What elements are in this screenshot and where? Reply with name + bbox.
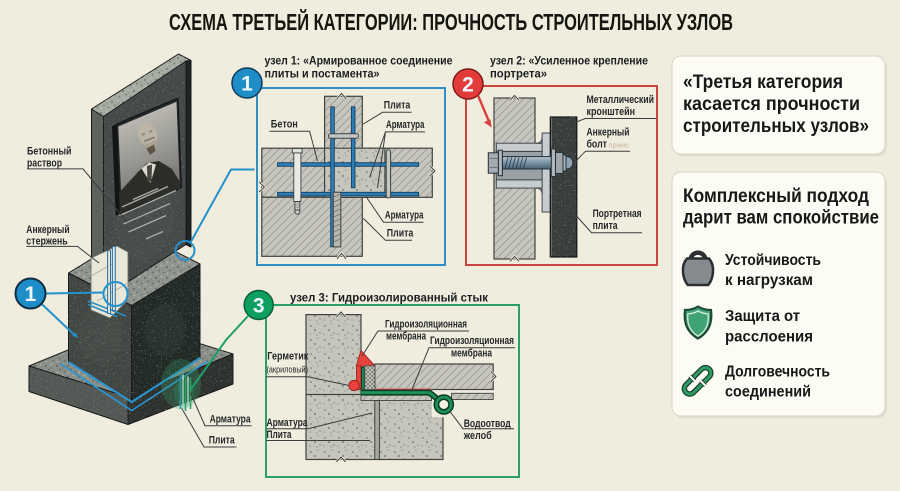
svg-text:Устойчивость: Устойчивость xyxy=(725,252,821,269)
svg-text:СХЕМА ТРЕТЬЕЙ КАТЕГОРИИ: ПРОЧН: СХЕМА ТРЕТЬЕЙ КАТЕГОРИИ: ПРОЧНОСТЬ СТРОИ… xyxy=(169,8,733,35)
svg-text:раствор: раствор xyxy=(27,158,62,170)
svg-text:плита: плита xyxy=(593,220,619,232)
svg-text:желоб: желоб xyxy=(463,430,492,442)
svg-text:касается прочности: касается прочности xyxy=(683,93,860,115)
svg-text:узел 3: Гидроизолированный сты: узел 3: Гидроизолированный стык xyxy=(290,291,489,305)
svg-text:Анкерный: Анкерный xyxy=(26,224,69,236)
svg-text:Арматура: Арматура xyxy=(386,119,425,131)
svg-text:(акриловый): (акриловый) xyxy=(267,365,309,375)
svg-text:стержень: стержень xyxy=(26,236,68,248)
svg-text:к нагрузкам: к нагрузкам xyxy=(725,272,813,289)
svg-text:Герметик: Герметик xyxy=(267,351,308,363)
svg-text:Водоотвод: Водоотвод xyxy=(464,418,511,430)
svg-text:Гидроизоляционная: Гидроизоляционная xyxy=(385,319,467,331)
svg-text:Плита: Плита xyxy=(209,435,236,447)
svg-text:Арматура: Арматура xyxy=(267,417,309,429)
svg-text:узел 2: «Усиленное крепление: узел 2: «Усиленное крепление xyxy=(490,56,648,68)
svg-text:2: 2 xyxy=(462,74,474,97)
svg-text:узел 1: «Армированное соединен: узел 1: «Армированное соединение xyxy=(265,56,453,68)
svg-text:Гидроизоляционная: Гидроизоляционная xyxy=(430,335,514,347)
svg-text:мембрана: мембрана xyxy=(451,347,493,359)
svg-text:1: 1 xyxy=(25,283,37,306)
svg-text:дарит вам спокойствие: дарит вам спокойствие xyxy=(683,207,879,229)
svg-text:Металлический: Металлический xyxy=(587,94,655,106)
svg-text:3: 3 xyxy=(253,295,265,318)
svg-text:мембрана: мембрана xyxy=(386,331,427,343)
svg-text:Плита: Плита xyxy=(384,100,411,112)
svg-text:1: 1 xyxy=(241,73,253,96)
svg-text:портрета»: портрета» xyxy=(490,69,547,81)
svg-text:Арматура: Арматура xyxy=(385,210,424,222)
svg-text:Плита: Плита xyxy=(267,429,293,441)
svg-text:соединений: соединений xyxy=(725,384,811,401)
svg-text:Арматура: Арматура xyxy=(210,414,252,426)
svg-text:расслоения: расслоения xyxy=(725,329,813,346)
svg-text:плиты и постамента»: плиты и постамента» xyxy=(265,69,380,81)
svg-text:Портретная: Портретная xyxy=(593,208,642,220)
svg-text:Бетонный: Бетонный xyxy=(27,146,72,158)
svg-text:Бетон: Бетон xyxy=(271,119,298,131)
svg-text:Долговечность: Долговечность xyxy=(725,364,830,381)
svg-text:«Третья категория: «Третья категория xyxy=(683,71,843,93)
svg-text:Плита: Плита xyxy=(387,228,414,240)
svg-text:Защита от: Защита от xyxy=(725,308,800,325)
svg-text:строительных узлов»: строительных узлов» xyxy=(683,115,869,137)
svg-text:Комплексный подход: Комплексный подход xyxy=(683,185,870,207)
svg-text:болт: болт xyxy=(587,139,608,151)
svg-text:кронштейн: кронштейн xyxy=(587,106,636,118)
svg-text:Анкерный: Анкерный xyxy=(587,127,630,139)
svg-text:приис: приис xyxy=(609,141,630,150)
